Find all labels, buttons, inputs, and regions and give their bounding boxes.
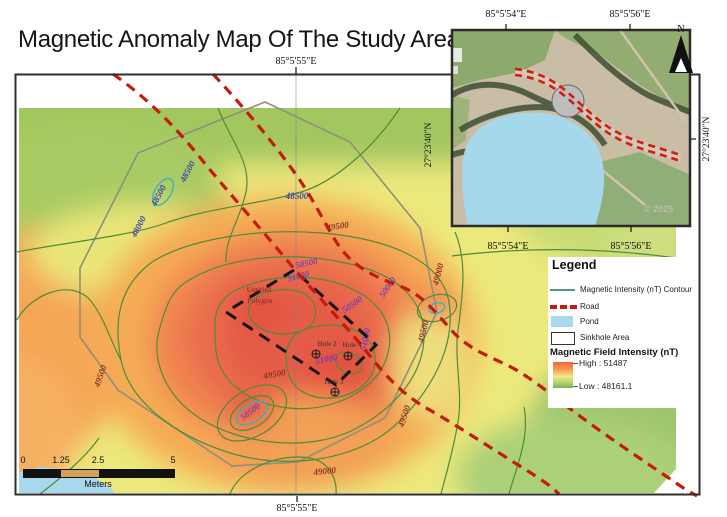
inset-coord-right: 27°23'40"N	[701, 116, 712, 161]
intensity-gradient-bar	[553, 362, 573, 388]
scale-segment	[99, 470, 174, 477]
sinkhole-swatch	[551, 332, 575, 345]
inset-satellite-image: © 2025	[452, 30, 690, 226]
svg-text:Hole 3: Hole 3	[325, 378, 344, 386]
scale-segment	[61, 470, 99, 477]
legend-title: Legend	[552, 258, 596, 272]
gradient-tick	[573, 386, 578, 387]
svg-text:Polygon: Polygon	[247, 296, 272, 305]
hole-marker-icon	[344, 352, 352, 360]
scale-tick-label: 1.25	[52, 455, 70, 465]
inset-coord-top-right: 85°5'56"E	[610, 9, 651, 20]
inset-coord-top-left: 85°5'54"E	[486, 9, 527, 20]
svg-text:48500: 48500	[285, 191, 309, 201]
svg-text:Hole 2: Hole 2	[318, 340, 337, 348]
road-swatch	[570, 305, 577, 309]
hole-marker-icon	[312, 350, 320, 358]
inset-coord-bottom-right: 85°5'56"E	[611, 241, 652, 252]
legend: Legend Magnetic Intensity (nT) Contour R…	[548, 257, 698, 408]
road-swatch	[550, 305, 557, 309]
contour-line-swatch	[550, 289, 575, 291]
scale-tick-label: 2.5	[92, 455, 105, 465]
scale-segment	[24, 470, 61, 477]
imagery-watermark: © 2025	[644, 204, 673, 214]
inset-coord-bottom-left: 85°5'54"E	[488, 241, 529, 252]
hole-marker-icon	[331, 388, 339, 396]
svg-text:Hole 4: Hole 4	[343, 341, 362, 349]
figure: Magnetic Anomaly Map Of The Study Area	[0, 0, 727, 517]
scale-bar-segments	[23, 469, 175, 478]
scale-unit-label: Meters	[84, 479, 112, 489]
scale-tick-label: 0	[20, 455, 25, 465]
inset-map: © 2025 85°5'54"E 85°5'56"E 85°5'54"E 85°…	[452, 9, 712, 252]
intensity-low-label: Low : 48161.1	[579, 381, 632, 391]
pond-swatch	[551, 316, 573, 327]
intensity-legend-title: Magnetic Field Intensity (nT)	[550, 347, 678, 358]
inset-pond	[462, 113, 604, 226]
svg-text:Untitled: Untitled	[247, 285, 272, 294]
svg-text:N: N	[677, 24, 684, 35]
building	[453, 48, 462, 62]
latitude-label: 27°23'40"N	[423, 122, 434, 167]
intensity-high-label: High : 51487	[579, 358, 627, 368]
top-coordinate: 85°5'55"E	[276, 56, 317, 67]
bottom-coordinate: 85°5'55"E	[277, 503, 318, 514]
road-swatch	[560, 305, 567, 309]
gradient-tick	[573, 363, 578, 364]
scale-tick-label: 5	[170, 455, 175, 465]
